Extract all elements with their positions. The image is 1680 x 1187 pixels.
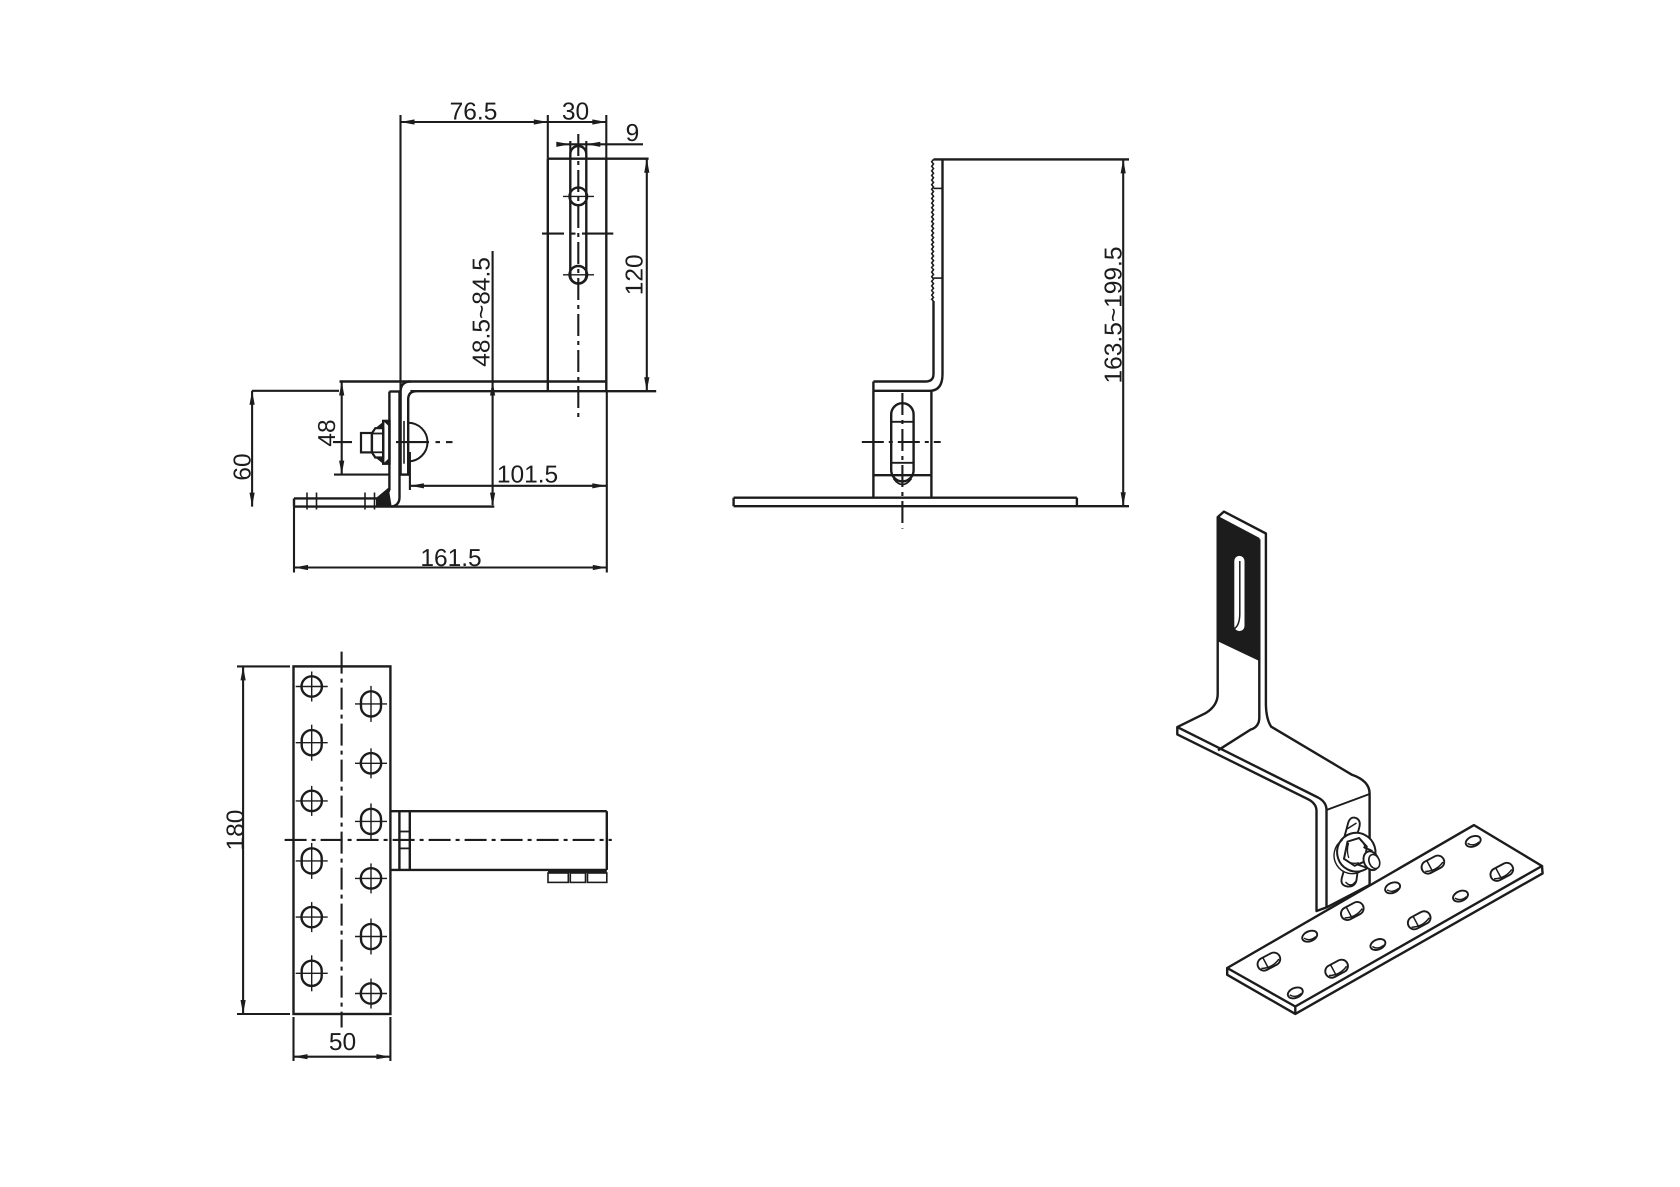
svg-text:101.5: 101.5: [497, 461, 558, 488]
svg-text:180: 180: [223, 810, 250, 851]
svg-text:48.5~84.5: 48.5~84.5: [469, 257, 496, 367]
svg-text:9: 9: [626, 120, 640, 147]
svg-text:163.5~199.5: 163.5~199.5: [1101, 247, 1128, 384]
svg-text:50: 50: [329, 1029, 356, 1056]
svg-text:30: 30: [562, 98, 589, 125]
svg-text:120: 120: [622, 254, 649, 295]
svg-text:161.5: 161.5: [420, 545, 481, 572]
svg-text:60: 60: [230, 453, 257, 480]
svg-text:76.5: 76.5: [450, 98, 498, 125]
